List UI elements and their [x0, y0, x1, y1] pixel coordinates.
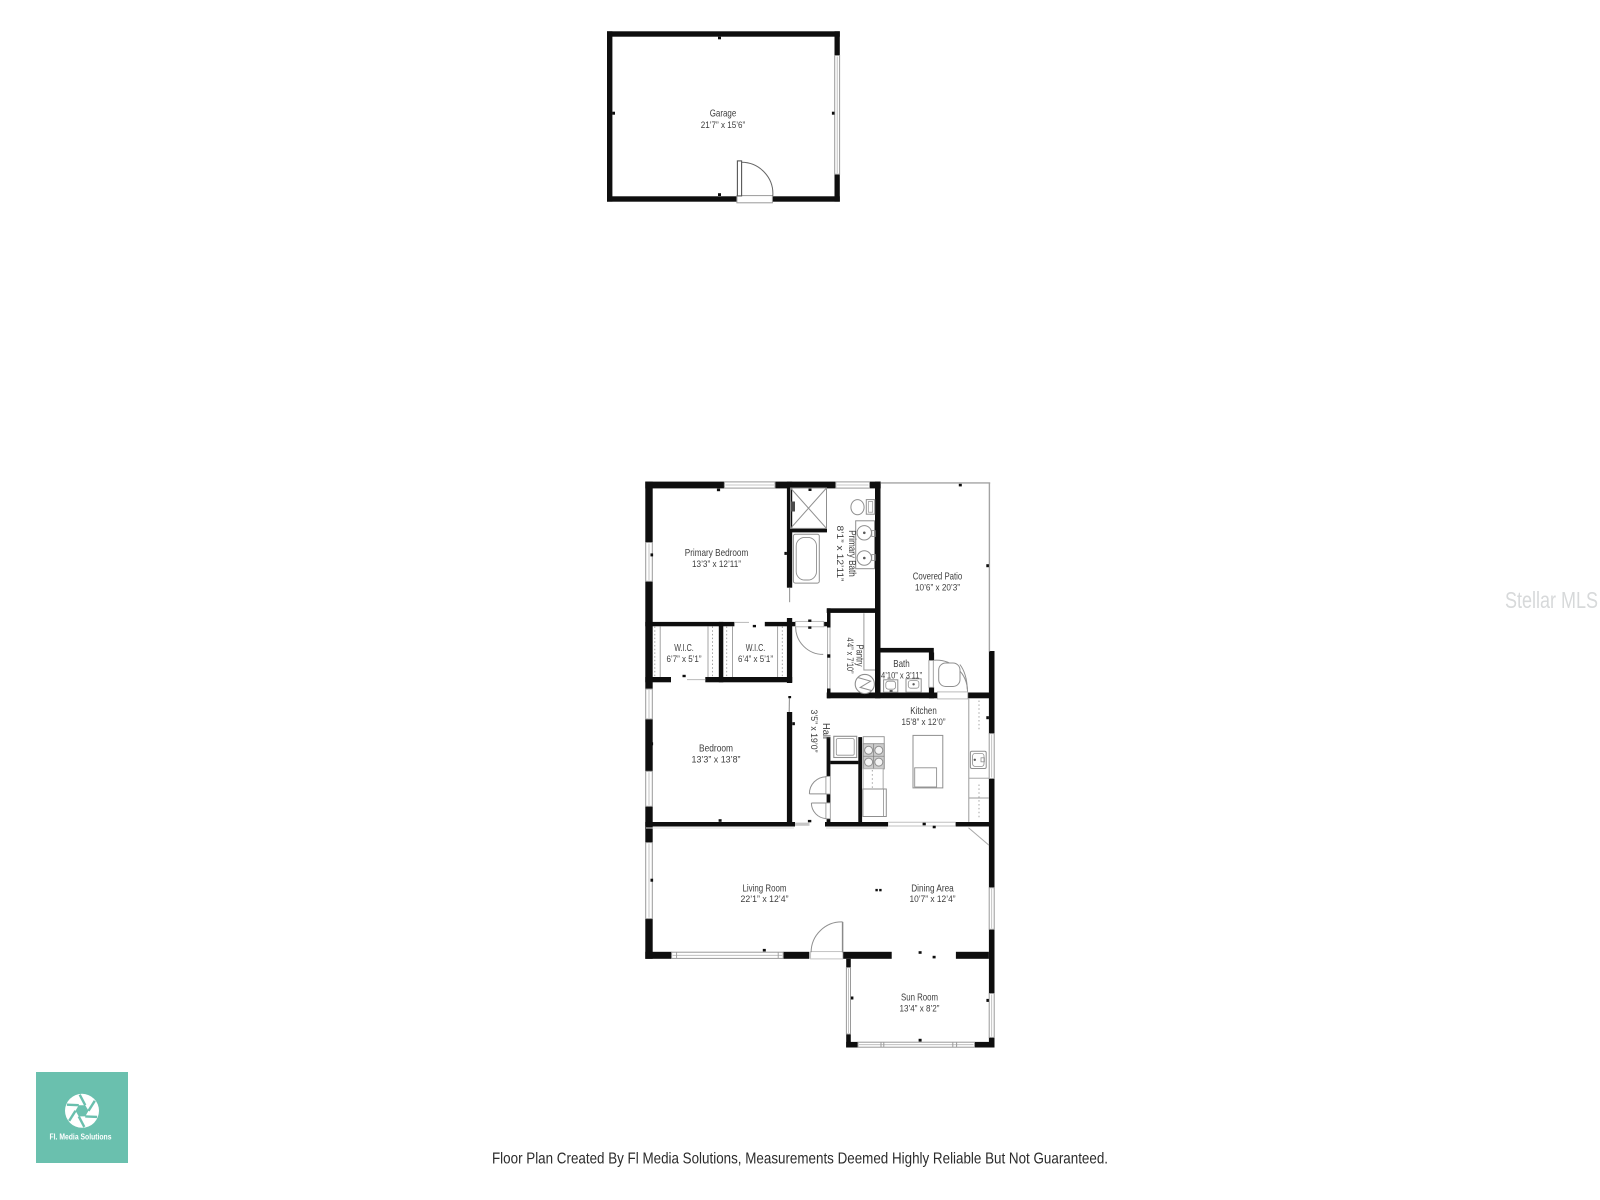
svg-text:10’6” x 20’3”: 10’6” x 20’3”: [915, 583, 960, 594]
svg-text:22’1” x 12’4”: 22’1” x 12’4”: [741, 894, 789, 905]
svg-text:W.I.C.: W.I.C.: [674, 643, 694, 654]
svg-text:Covered Patio: Covered Patio: [913, 572, 963, 583]
svg-text:Sun Room: Sun Room: [901, 992, 938, 1003]
svg-text:15’8” x 12’0”: 15’8” x 12’0”: [902, 717, 946, 728]
svg-text:21’7” x 15’6”: 21’7” x 15’6”: [701, 120, 746, 131]
svg-text:Kitchen: Kitchen: [910, 706, 937, 717]
svg-text:Garage: Garage: [710, 109, 737, 120]
svg-text:Living Room: Living Room: [743, 883, 787, 894]
svg-text:Bedroom: Bedroom: [699, 744, 733, 755]
svg-text:6’7” x 5’1”: 6’7” x 5’1”: [667, 654, 702, 665]
svg-text:Floor Plan Created By Fl Media: Floor Plan Created By Fl Media Solutions…: [492, 1151, 1108, 1168]
svg-text:Primary Bath: Primary Bath: [846, 530, 857, 577]
svg-text:6’4” x 5’1”: 6’4” x 5’1”: [738, 654, 773, 665]
svg-text:Fl. Media Solutions: Fl. Media Solutions: [50, 1132, 112, 1142]
svg-text:4’4” x 7’10”: 4’4” x 7’10”: [844, 638, 855, 674]
svg-text:Bath: Bath: [893, 659, 910, 670]
svg-text:4’10” x 3’11”: 4’10” x 3’11”: [881, 670, 922, 681]
svg-text:8’1” x 12’11”: 8’1” x 12’11”: [834, 526, 845, 582]
svg-text:3’5” x 19’0”: 3’5” x 19’0”: [808, 710, 819, 753]
svg-text:13’4” x 8’2”: 13’4” x 8’2”: [900, 1004, 940, 1015]
svg-text:W.I.C.: W.I.C.: [746, 643, 766, 654]
svg-text:13’3” x 12’11”: 13’3” x 12’11”: [692, 559, 741, 570]
svg-text:Primary Bedroom: Primary Bedroom: [685, 548, 749, 559]
svg-text:13’3” x 13’8”: 13’3” x 13’8”: [692, 755, 741, 766]
svg-text:Dining Area: Dining Area: [911, 883, 954, 894]
svg-text:Stellar MLS: Stellar MLS: [1505, 587, 1598, 613]
svg-text:Hall: Hall: [820, 723, 831, 739]
svg-text:10’7” x 12’4”: 10’7” x 12’4”: [910, 894, 956, 905]
